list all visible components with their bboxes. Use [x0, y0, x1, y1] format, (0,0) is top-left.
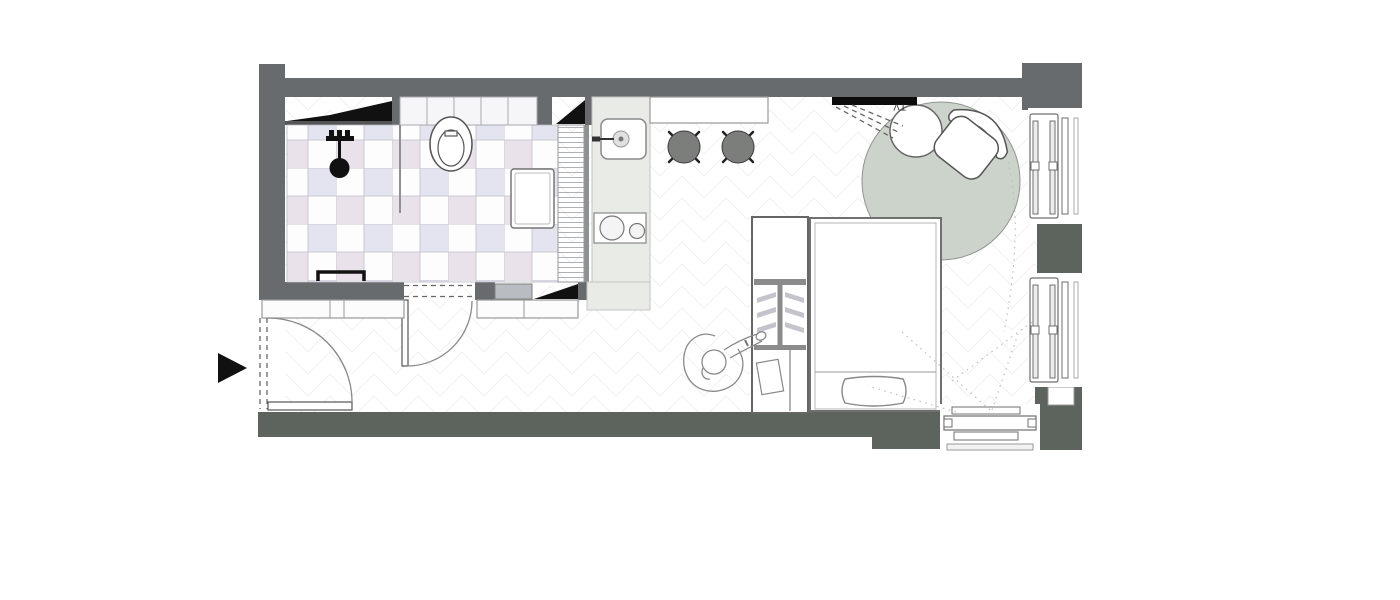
- floor-plan-page: TV: [0, 0, 1400, 600]
- wall-stub: [585, 97, 592, 125]
- cooktop: [594, 213, 646, 243]
- floor-plan-svg: TV: [0, 0, 1400, 600]
- west-wall: [259, 64, 285, 300]
- sliding-panel: [495, 284, 532, 299]
- bar-stool: [668, 131, 700, 163]
- bar-counter: [650, 97, 768, 123]
- niche-ledge: [285, 121, 392, 125]
- south-wall-step: [872, 412, 945, 449]
- window-radiator: [1028, 273, 1082, 387]
- tv-label: TV: [893, 101, 906, 112]
- wall-stub: [392, 97, 400, 125]
- corner-vent: [1048, 387, 1074, 405]
- window-radiator: [1028, 108, 1082, 224]
- north-wall: [285, 78, 1040, 97]
- bed: [810, 218, 941, 411]
- toilet: [430, 117, 472, 171]
- bathroom-south-wall: [259, 282, 404, 300]
- kitchen-partition-edge: [584, 125, 589, 282]
- bathroom-south-wall: [475, 282, 495, 300]
- installation-shaft: [558, 125, 584, 282]
- north-east-corner: [1022, 63, 1082, 110]
- bar-stool: [722, 131, 754, 163]
- vanity-unit: [511, 169, 554, 228]
- window-pier: [1037, 222, 1082, 275]
- tile-shelf: [400, 97, 537, 125]
- kitchen-counter-end: [587, 282, 650, 310]
- wall-stub: [537, 97, 552, 125]
- pillow: [842, 377, 906, 407]
- wardrobe: [752, 217, 808, 413]
- entry-arrow: [218, 353, 247, 383]
- south-wall: [258, 412, 872, 437]
